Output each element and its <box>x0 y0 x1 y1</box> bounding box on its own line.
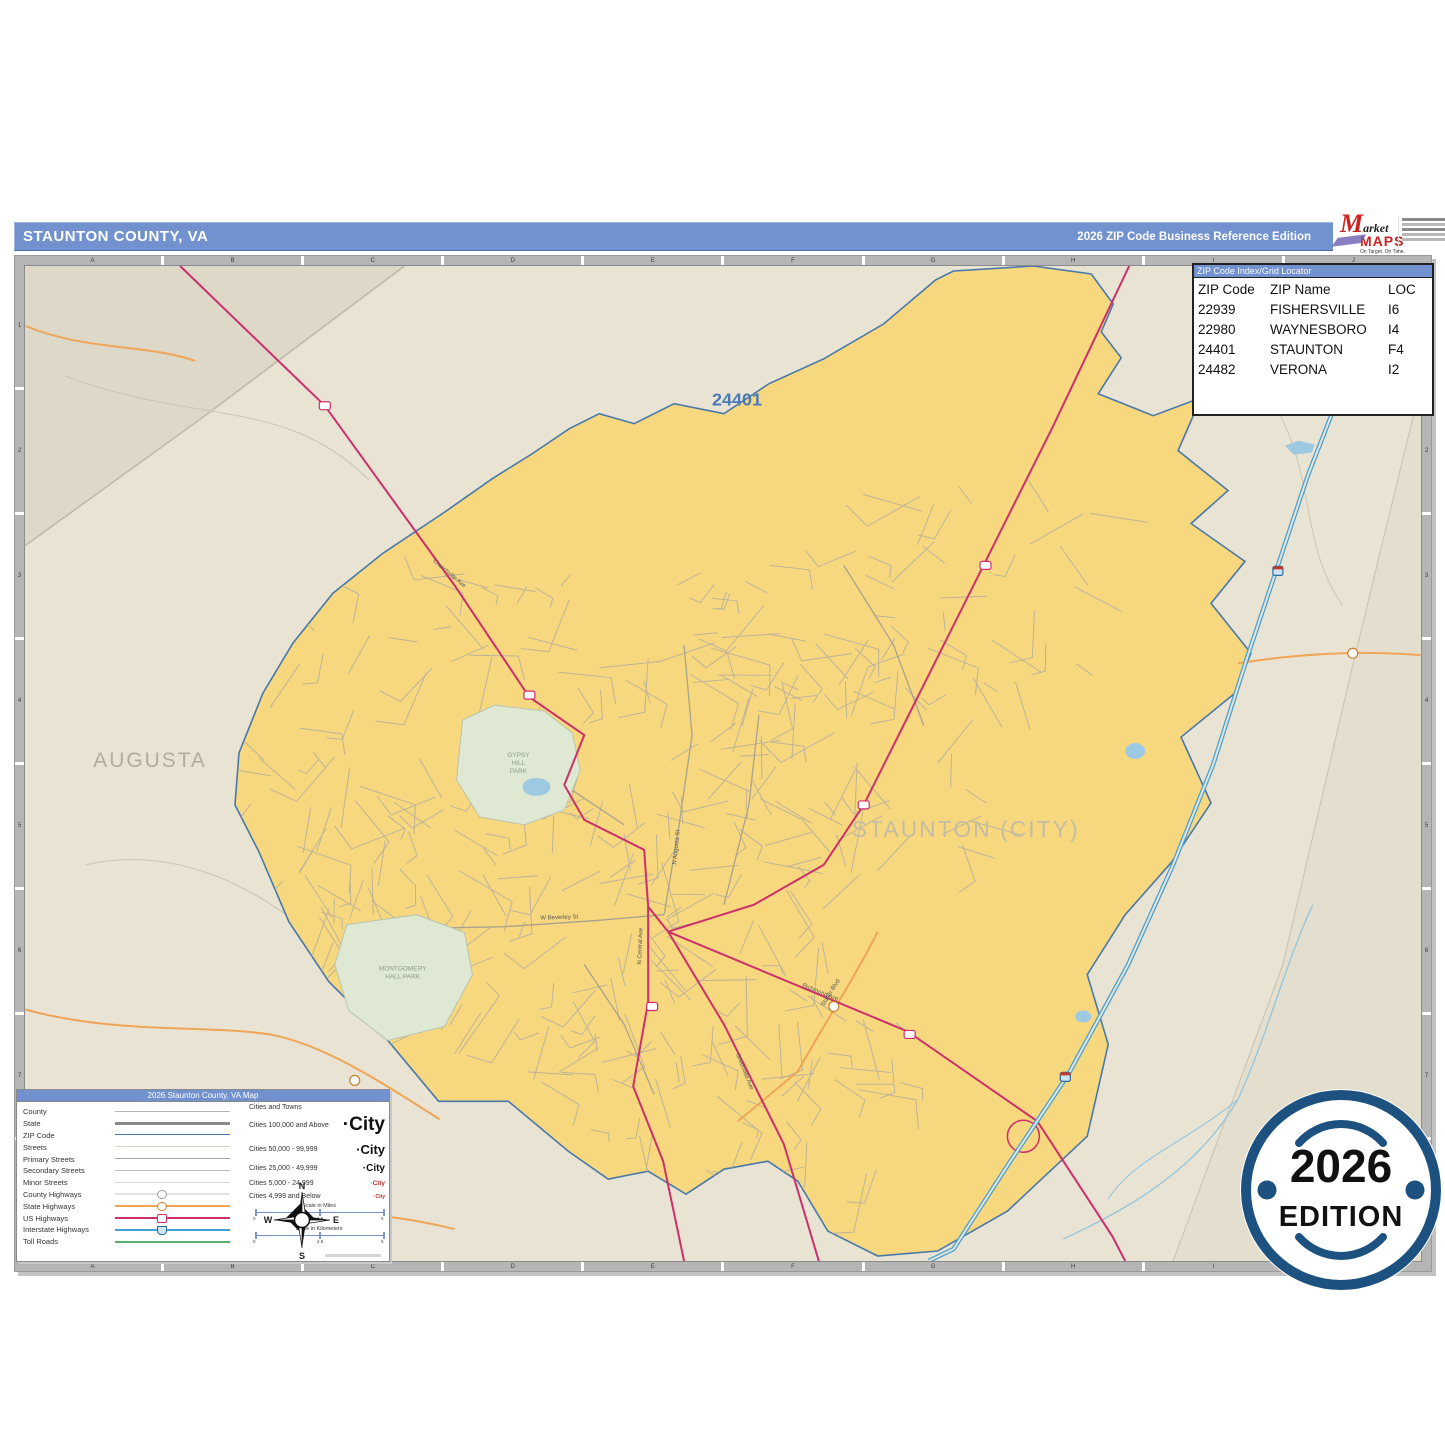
grid-cell-label: 4 <box>15 640 24 762</box>
zip-table-row: 24482VERONAI2 <box>1194 360 1432 380</box>
grid-cell-label: C <box>304 256 441 265</box>
map-title: STAUNTON COUNTY, VA <box>15 228 208 245</box>
legend-sample-streets <box>115 1144 230 1150</box>
legend-item-countyhwy: County Highways <box>23 1189 243 1201</box>
grid-cell-label: 6 <box>1422 890 1431 1012</box>
grid-cell-label: F <box>724 256 861 265</box>
edition-subtitle: 2026 ZIP Code Business Reference Edition <box>1077 231 1333 243</box>
grid-cell-label: F <box>724 1262 861 1271</box>
zip-index-table: ZIP Code Index/Grid Locator ZIP CodeZIP … <box>1192 263 1434 416</box>
park-label: MONTGOMERY <box>379 966 427 973</box>
zip-table-header: ZIP Name <box>1266 278 1384 300</box>
compass-e: E <box>333 1215 339 1225</box>
interstate-shield-icon <box>1273 566 1283 569</box>
us-route-shield-icon <box>980 561 991 569</box>
logo-contact-block <box>1398 216 1445 250</box>
state-route-shield-icon <box>829 1002 839 1012</box>
pond-east <box>1125 743 1145 759</box>
legend-city-class: Cities 100,000 and Above·City <box>249 1114 385 1136</box>
legend-item-ushwy: US Highways <box>23 1212 243 1224</box>
us-route-shield-icon <box>647 1003 658 1011</box>
legend-sample-ushwy <box>115 1215 230 1221</box>
grid-letters-bottom: ABCDEFGHIJ <box>24 1262 1422 1271</box>
compass-w: W <box>264 1215 273 1225</box>
legend-item-statehwy: State Highways <box>23 1200 243 1212</box>
zip-label-24401: 24401 <box>712 390 762 410</box>
page: STAUNTON COUNTY, VA 2026 ZIP Code Busine… <box>0 0 1445 1445</box>
park-label: HILL <box>512 760 526 767</box>
legend-city-class: Cities 50,000 - 99,999·City <box>249 1142 385 1157</box>
grid-cell-label: B <box>164 1262 301 1271</box>
legend-line-items: CountyStateZIP CodeStreetsPrimary Street… <box>23 1106 243 1248</box>
us-route-shield-icon <box>319 402 330 410</box>
legend-sample-statehwy <box>115 1203 230 1209</box>
state-route-shield-icon <box>1348 648 1358 658</box>
zip-table-header: ZIP Code <box>1194 278 1266 300</box>
us-route-shield-icon <box>524 691 535 699</box>
legend-sample-toll <box>115 1239 230 1245</box>
header-bar: STAUNTON COUNTY, VA 2026 ZIP Code Busine… <box>14 222 1333 251</box>
us-route-shield-icon <box>858 801 869 809</box>
compass-rose-icon: N S W E <box>262 1180 342 1260</box>
legend-sample-secondary <box>115 1168 230 1174</box>
grid-cell-label: 6 <box>15 890 24 1012</box>
grid-cell-label: E <box>584 256 721 265</box>
grid-cell-label: 2 <box>15 390 24 512</box>
legend-item-interstate: Interstate Highways <box>23 1224 243 1236</box>
legend-item-secondary: Secondary Streets <box>23 1165 243 1177</box>
park-pond <box>522 778 550 796</box>
grid-cell-label: C <box>304 1262 441 1271</box>
legend-sample-countyhwy <box>115 1191 230 1197</box>
legend-sample-primary <box>115 1156 230 1162</box>
legend-item-state: State <box>23 1118 243 1130</box>
grid-cell-label: G <box>865 256 1002 265</box>
legend-title: 2026 Staunton County, VA Map <box>17 1090 389 1102</box>
legend-item-zip: ZIP Code <box>23 1130 243 1142</box>
badge-edition: EDITION <box>1279 1201 1404 1233</box>
edition-badge: 2026 EDITION <box>1237 1086 1445 1294</box>
legend-sample-zip <box>115 1132 230 1138</box>
zip-table-row: 22939FISHERSVILLEI6 <box>1194 300 1432 320</box>
compass-n: N <box>299 1181 306 1191</box>
us-route-shield-icon <box>904 1030 915 1038</box>
legend-item-county: County <box>23 1106 243 1118</box>
pond-se <box>1075 1011 1091 1023</box>
grid-cell-label: A <box>24 256 161 265</box>
grid-cell-label: G <box>865 1262 1002 1271</box>
legend-item-streets: Streets <box>23 1141 243 1153</box>
zip-index-title: ZIP Code Index/Grid Locator <box>1194 265 1432 278</box>
park-label: GYPSY <box>507 752 530 759</box>
grid-cell-label: A <box>24 1262 161 1271</box>
park-label: PARK <box>510 768 528 775</box>
legend-item-minor: Minor Streets <box>23 1177 243 1189</box>
park-label: HALL PARK <box>385 974 421 981</box>
legend-sample-interstate <box>115 1227 230 1233</box>
grid-cell-label: 1 <box>15 265 24 387</box>
grid-cell-label: B <box>164 256 301 265</box>
state-route-shield-icon <box>350 1075 360 1085</box>
zip-table-header: LOC <box>1384 278 1432 300</box>
grid-cell-label: 4 <box>1422 640 1431 762</box>
zip-table-row: 22980WAYNESBOROI4 <box>1194 320 1432 340</box>
interstate-shield-icon <box>1060 1072 1070 1075</box>
city-label: STAUNTON (CITY) <box>852 816 1080 842</box>
grid-cell-label: E <box>584 1262 721 1271</box>
grid-cell-label: D <box>444 1262 581 1271</box>
compass-s: S <box>299 1251 305 1260</box>
legend-item-primary: Primary Streets <box>23 1153 243 1165</box>
grid-cell-label: H <box>1005 256 1142 265</box>
legend-city-class: Cities 25,000 - 49,999·City <box>249 1163 385 1174</box>
legend-item-toll: Toll Roads <box>23 1236 243 1248</box>
grid-cell-label: D <box>444 256 581 265</box>
legend-cities-header: Cities and Towns <box>249 1104 385 1111</box>
grid-cell-label: 5 <box>1422 765 1431 887</box>
grid-cell-label: 3 <box>1422 515 1431 637</box>
legend-sample-minor <box>115 1180 230 1186</box>
county-label: AUGUSTA <box>93 749 207 772</box>
grid-cell-label: 5 <box>15 765 24 887</box>
legend-sample-state <box>115 1121 230 1127</box>
legend-sample-county <box>115 1109 230 1115</box>
grid-cell-label: 3 <box>15 515 24 637</box>
badge-year: 2026 <box>1290 1140 1392 1192</box>
zip-table-row: 24401STAUNTONF4 <box>1194 340 1432 360</box>
grid-cell-label: H <box>1005 1262 1142 1271</box>
